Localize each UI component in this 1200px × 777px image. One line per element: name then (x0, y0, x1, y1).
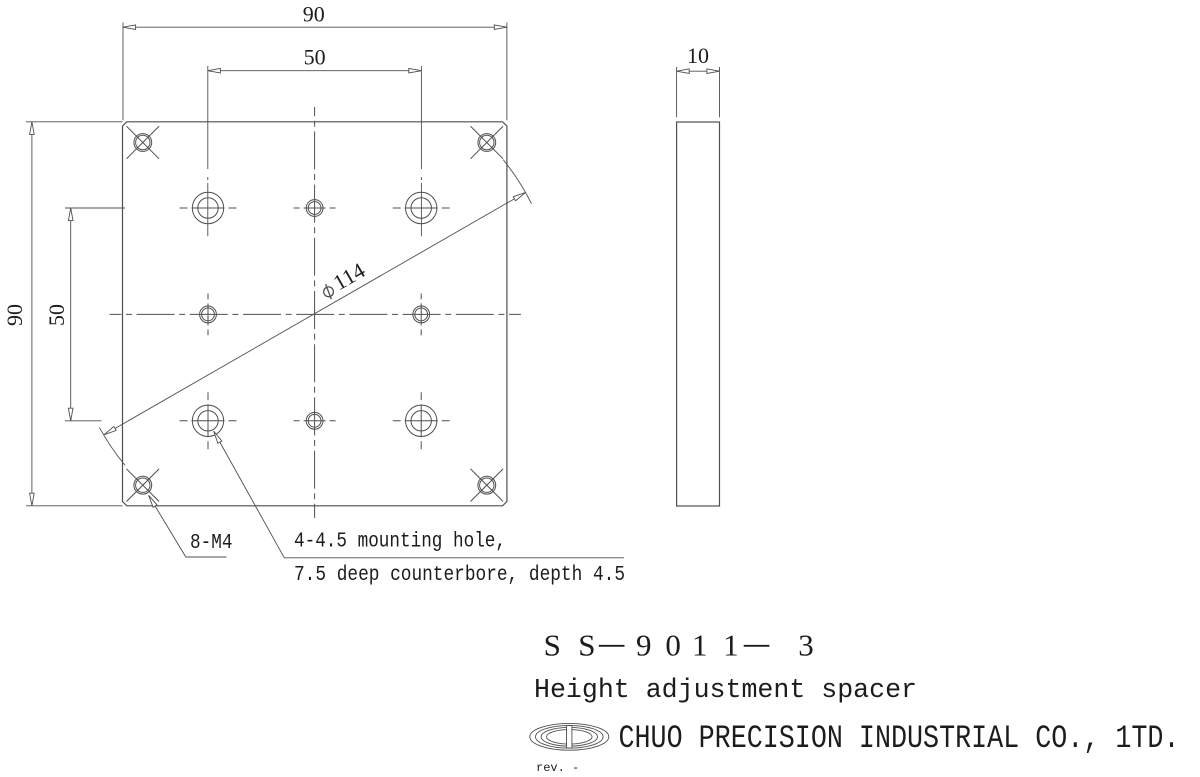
svg-text:Height adjustment spacer: Height adjustment spacer (534, 676, 917, 706)
svg-text:90: 90 (2, 304, 27, 326)
svg-text:50: 50 (304, 45, 326, 70)
svg-text:S: S (544, 627, 561, 662)
svg-text:9: 9 (636, 627, 652, 662)
svg-text:4-4.5 mounting hole,: 4-4.5 mounting hole, (294, 529, 506, 553)
svg-text:90: 90 (303, 1, 325, 26)
svg-text:3: 3 (798, 627, 814, 662)
svg-text:10: 10 (687, 43, 709, 68)
svg-text:rev. -: rev. - (536, 761, 579, 775)
svg-text:1: 1 (723, 627, 739, 662)
svg-text:50: 50 (44, 304, 69, 326)
svg-text:0: 0 (665, 627, 681, 662)
svg-text:114: 114 (329, 257, 369, 295)
svg-text:8-M4: 8-M4 (190, 530, 233, 554)
svg-text:S: S (578, 627, 595, 662)
svg-text:1: 1 (692, 627, 708, 662)
svg-text:CHUO PRECISION INDUSTRIAL CO.,: CHUO PRECISION INDUSTRIAL CO., 1TD. (619, 720, 1180, 757)
svg-text:7.5 deep counterbore, depth 4.: 7.5 deep counterbore, depth 4.5 (294, 562, 625, 586)
